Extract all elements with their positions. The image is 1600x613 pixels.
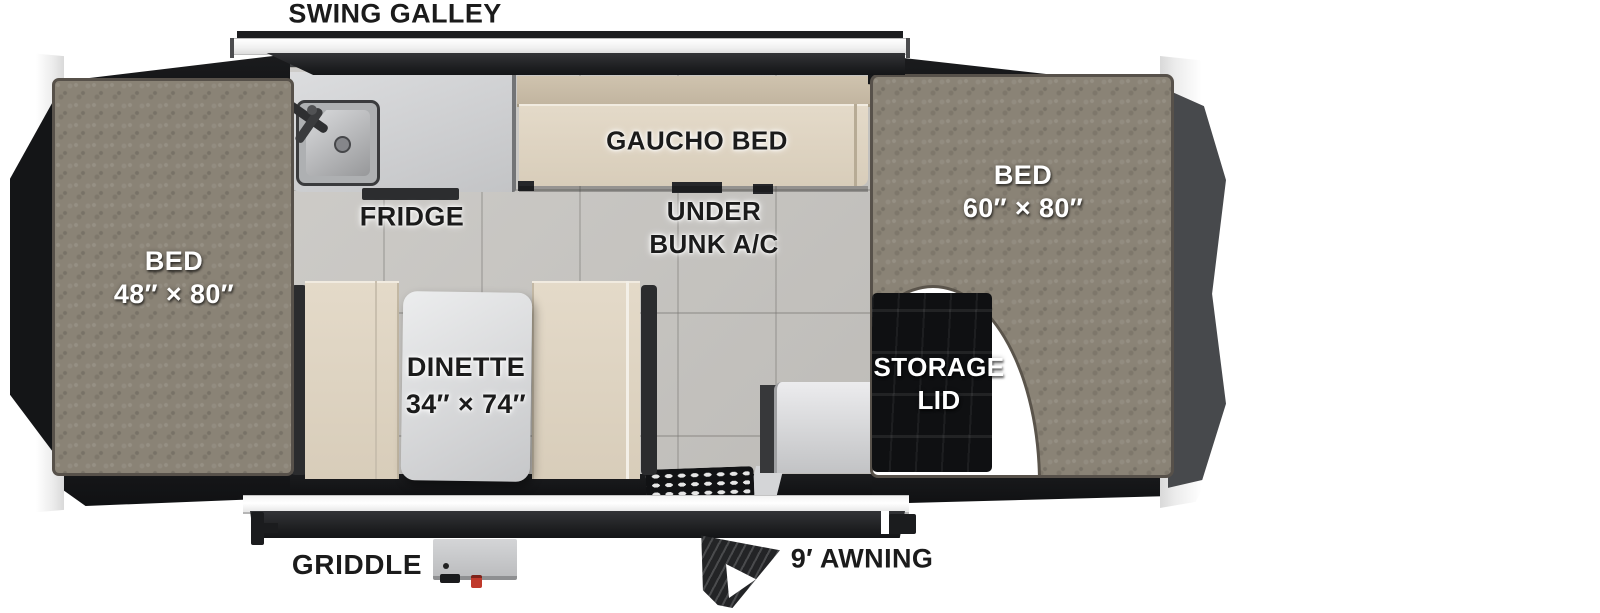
griddle-label: GRIDDLE xyxy=(292,549,422,581)
griddle-regulator xyxy=(471,575,482,588)
dinette-bench-left xyxy=(291,281,399,479)
rail-bracket-left-nub xyxy=(264,523,278,533)
gaucho-bed-label: GAUCHO BED xyxy=(606,126,788,157)
floorplan-canvas: SWING GALLEY FRIDGE GAUCHO BED UNDER BUN… xyxy=(0,0,1600,613)
rail-notch-right xyxy=(881,511,889,534)
rail-bracket-left xyxy=(251,512,264,545)
entry-door-flap xyxy=(698,534,780,608)
gaucho-seam xyxy=(854,104,857,186)
gaucho-backrest xyxy=(517,76,872,107)
gaucho-shadow xyxy=(519,186,868,192)
rail-bracket-right xyxy=(889,514,916,534)
galley-rail-end-cap xyxy=(230,38,234,58)
storage-lid-label: STORAGE LID xyxy=(874,351,1005,417)
bed-left-label: BED 48″ × 80″ xyxy=(114,245,234,311)
fridge-label: FRIDGE xyxy=(360,202,464,233)
griddle-foot xyxy=(440,574,460,583)
sink-icon xyxy=(296,100,380,186)
dinette-label: DINETTE 34″ × 74″ xyxy=(406,349,526,423)
galley-rail-white-bar xyxy=(233,38,909,55)
awning-rail-bar xyxy=(250,511,905,538)
dinette-bench-right xyxy=(532,281,657,479)
swing-galley-label: SWING GALLEY xyxy=(288,0,501,30)
under-bunk-ac-label: UNDER BUNK A/C xyxy=(649,195,778,261)
cabinet-box xyxy=(774,382,881,473)
galley-rail-end-cap xyxy=(906,38,910,58)
bed-right-label: BED 60″ × 80″ xyxy=(963,159,1083,225)
awning-label: 9′ AWNING xyxy=(791,544,934,575)
galley-rail-black-bar xyxy=(240,53,905,75)
fridge-vent xyxy=(362,188,459,200)
